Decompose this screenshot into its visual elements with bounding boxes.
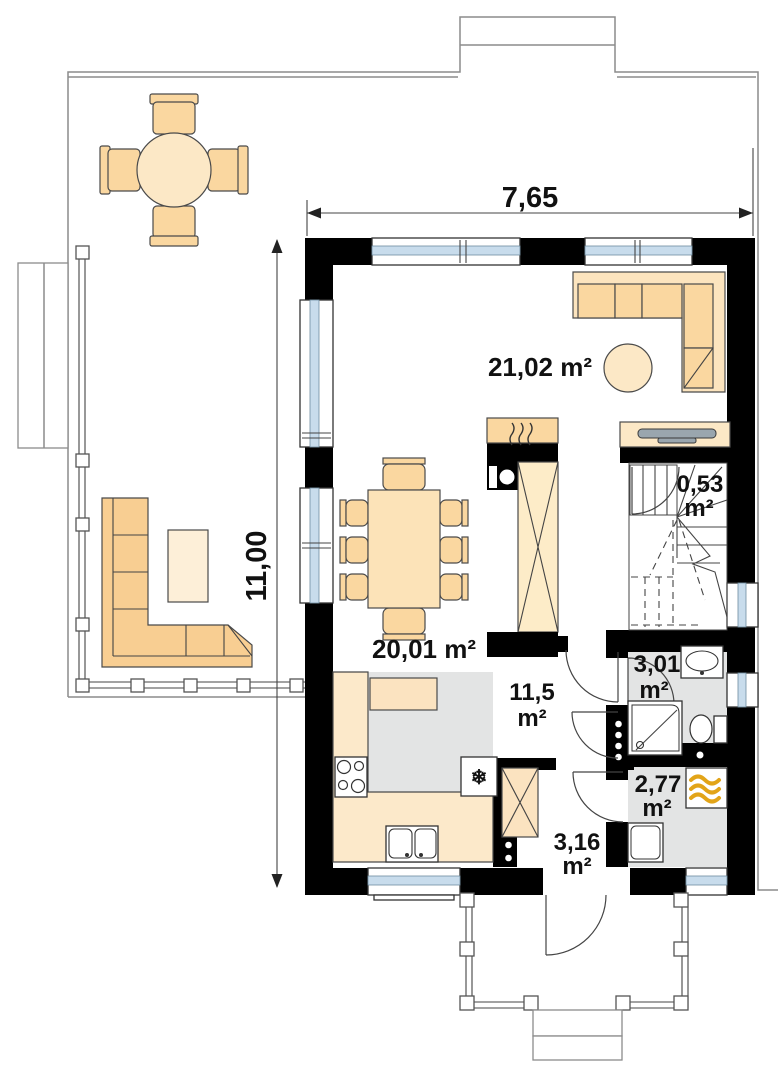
snowflake-icon: ❄ <box>471 767 488 789</box>
radiator <box>500 836 517 867</box>
outdoor-side-table <box>168 530 208 602</box>
tv-console <box>620 422 730 447</box>
dining-chair <box>340 537 368 563</box>
cooktop <box>335 757 367 797</box>
bathroom-sink <box>681 646 723 678</box>
outdoor-dining-set <box>100 94 248 246</box>
room-label-hall-value: 11,5 <box>509 679 554 706</box>
living-room-furniture <box>573 272 730 447</box>
tv <box>638 429 716 438</box>
dimension-width: 7,65 <box>307 148 753 236</box>
window <box>727 673 758 707</box>
dining-set <box>340 458 468 640</box>
dining-table <box>368 490 440 608</box>
fridge: ❄ <box>461 757 497 796</box>
floor-plan: ❄ <box>0 0 778 1081</box>
dining-chair <box>340 574 368 600</box>
room-label-utility-value: 2,77 <box>635 771 682 798</box>
porch-steps <box>533 1010 622 1060</box>
porch <box>460 893 688 1060</box>
chimney-shaft <box>518 462 558 632</box>
dining-chair <box>383 458 425 490</box>
outdoor-chair <box>100 146 140 194</box>
window <box>585 238 692 265</box>
shower <box>628 701 682 755</box>
room-label-vestibule-unit: m² <box>562 853 591 880</box>
dining-chair <box>340 500 368 526</box>
room-label-storage-value: 0,53 <box>677 471 724 498</box>
room-label-hall-unit: m² <box>517 705 546 732</box>
room-label-utility-unit: m² <box>642 795 671 822</box>
radiator <box>609 716 628 760</box>
outdoor-chair <box>208 146 248 194</box>
outdoor-round-table <box>137 133 211 207</box>
dimension-depth-label: 11,00 <box>241 531 273 602</box>
outdoor-chair <box>150 94 198 134</box>
window <box>300 300 333 447</box>
window <box>727 583 758 627</box>
window <box>368 868 460 900</box>
entry-door-arc <box>546 895 606 955</box>
washing-machine <box>628 823 663 862</box>
room-label-bathroom-unit: m² <box>639 677 668 704</box>
dining-chair <box>440 500 468 526</box>
boiler <box>686 768 727 808</box>
window <box>300 488 333 603</box>
porch-railing <box>460 893 688 1010</box>
coffee-table <box>604 344 652 392</box>
kitchen-island <box>370 678 437 710</box>
dining-chair <box>440 537 468 563</box>
toilet <box>690 715 727 743</box>
room-label-vestibule-value: 3,16 <box>554 829 601 856</box>
dimension-width-label: 7,65 <box>502 182 558 214</box>
kitchen-sink <box>386 826 438 862</box>
window <box>372 238 520 265</box>
outdoor-chair <box>150 206 198 246</box>
wardrobe <box>502 768 538 837</box>
dining-chair <box>440 574 468 600</box>
stairs-storage <box>630 465 679 515</box>
room-label-bathroom-value: 3,01 <box>634 651 681 678</box>
terrace-side-steps <box>18 263 68 448</box>
window <box>686 868 727 895</box>
room-label-living: 21,02 m² <box>488 352 592 382</box>
room-label-storage-unit: m² <box>684 495 713 522</box>
room-label-kitchen: 20,01 m² <box>372 634 476 664</box>
dimension-depth: 11,00 <box>241 239 283 888</box>
